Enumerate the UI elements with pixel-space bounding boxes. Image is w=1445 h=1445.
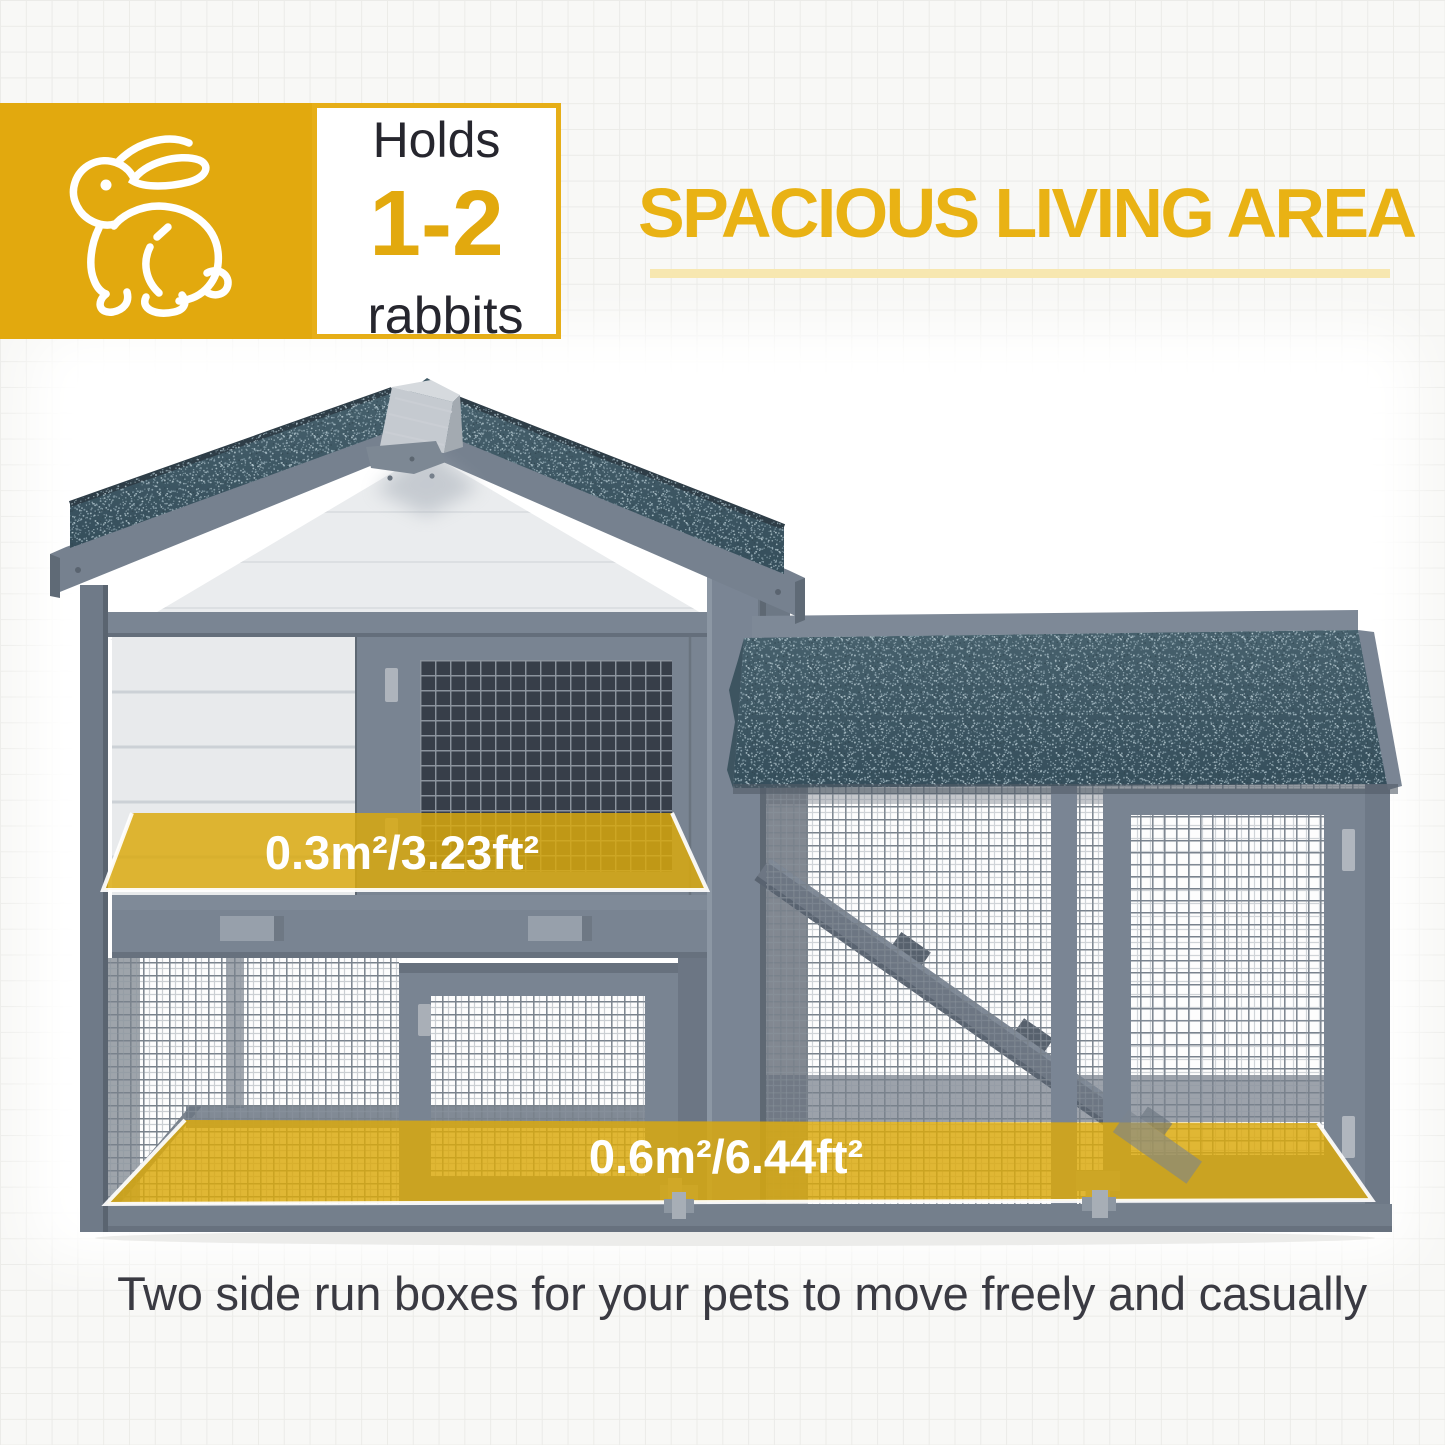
svg-text:0.6m²/6.44ft²: 0.6m²/6.44ft² bbox=[589, 1130, 863, 1183]
svg-text:0.3m²/3.23ft²: 0.3m²/3.23ft² bbox=[265, 826, 539, 879]
